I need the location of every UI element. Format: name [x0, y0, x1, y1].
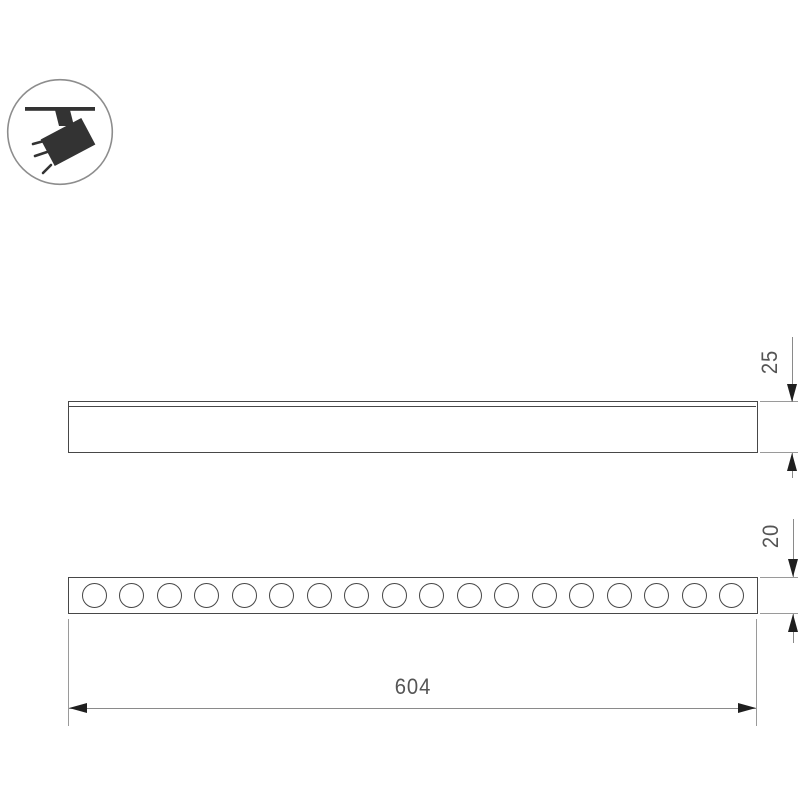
- led-circle: [457, 583, 482, 608]
- dim25-arrow-up-icon: [787, 453, 797, 471]
- side-profile-view: [68, 401, 758, 453]
- dim20-extension-top: [760, 577, 798, 578]
- track-spotlight-icon-svg: [6, 78, 114, 186]
- dim20-arrow-down-icon: [788, 559, 798, 577]
- led-circle: [344, 583, 369, 608]
- dim604-arrow-right-icon: [738, 703, 756, 713]
- track-spotlight-icon: [6, 78, 114, 186]
- led-circle: [494, 583, 519, 608]
- profile-flange-line: [69, 406, 756, 407]
- led-circle: [119, 583, 144, 608]
- led-circle: [82, 583, 107, 608]
- led-circle: [382, 583, 407, 608]
- led-circle: [307, 583, 332, 608]
- led-circle: [607, 583, 632, 608]
- led-circle: [419, 583, 444, 608]
- dim20-arrow-up-icon: [788, 614, 798, 632]
- dim604-line: [69, 708, 756, 709]
- dim604-arrow-left-icon: [69, 703, 87, 713]
- led-circle: [569, 583, 594, 608]
- dim604-label: 604: [395, 674, 432, 700]
- technical-drawing: 25 20 604: [0, 0, 800, 800]
- led-circle: [157, 583, 182, 608]
- dim20-label: 20: [758, 524, 784, 548]
- led-circle: [719, 583, 744, 608]
- led-circle: [644, 583, 669, 608]
- led-circle: [232, 583, 257, 608]
- dim25-arrow-down-icon: [787, 384, 797, 402]
- led-circle: [194, 583, 219, 608]
- led-circle: [532, 583, 557, 608]
- led-row: [69, 578, 757, 613]
- dim25-label: 25: [757, 350, 783, 374]
- dim604-extension-right: [756, 619, 757, 726]
- led-circle: [269, 583, 294, 608]
- led-circle: [682, 583, 707, 608]
- front-view: [68, 577, 758, 614]
